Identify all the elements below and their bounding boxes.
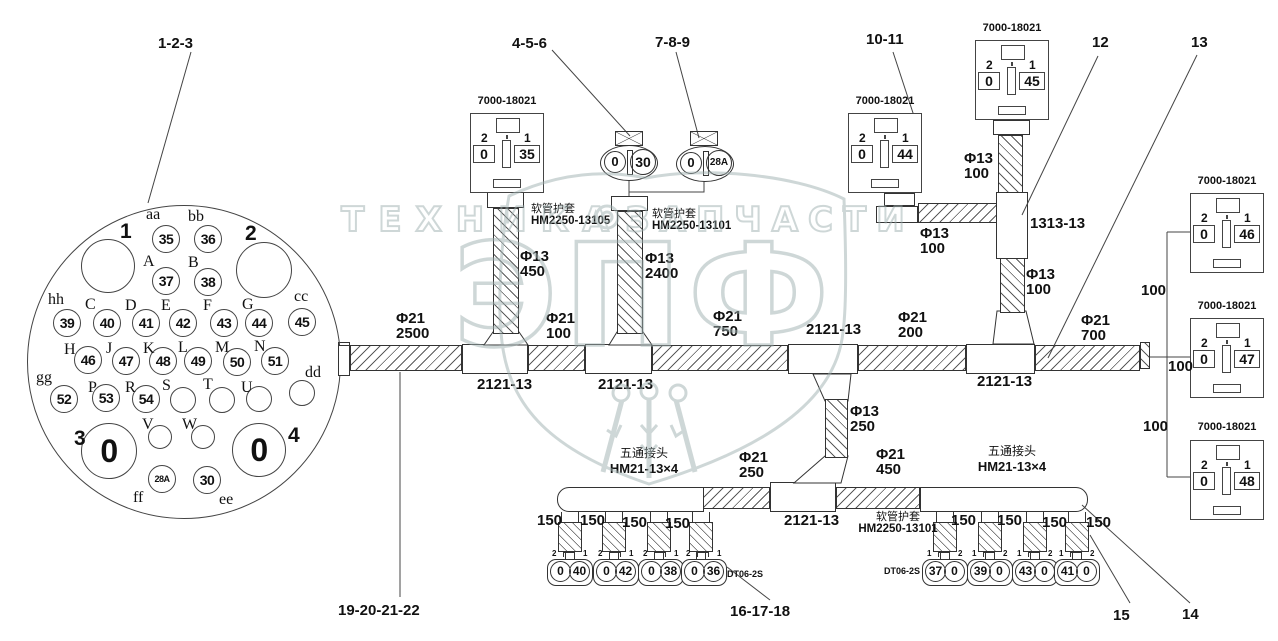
pin1-label: 1: [524, 131, 531, 145]
len-150: 150: [537, 513, 562, 529]
pin-circle: 0: [1034, 561, 1055, 582]
tube-100c-column: [918, 203, 997, 223]
tube-250-column: [825, 399, 848, 458]
pin2-label: 2: [986, 58, 993, 72]
y-joint-label: 1313-13: [1030, 216, 1085, 232]
connector-box-35: 2 1 0 35: [470, 113, 544, 193]
fitting-riser45: [993, 120, 1030, 135]
pin-label: 4: [288, 424, 300, 448]
five-way-label-left: 五通接头 HM21-13×4: [600, 444, 688, 476]
tube-label-100d: Φ13100: [1026, 267, 1055, 297]
pin1-label: 1: [1244, 336, 1251, 350]
callout-10-11: 10-11: [866, 32, 904, 48]
connector-box-44: 2 1 0 44: [848, 113, 922, 193]
pin-label: A: [143, 253, 155, 271]
pin-label: W: [182, 416, 197, 434]
connector-box-46: 2 1 0 46: [1190, 193, 1264, 273]
box-top-slot: [1001, 45, 1025, 60]
pin2-value: 0: [1193, 225, 1215, 243]
pin-num: 2: [1003, 549, 1007, 558]
pin-circle: 0: [944, 561, 965, 582]
pin-circle: 0: [550, 561, 571, 582]
pin-label: F: [203, 297, 212, 315]
box-top-slot: [1216, 323, 1240, 338]
pin-35: 35: [152, 225, 180, 253]
tee2-label: 2121-13: [598, 377, 653, 393]
pin-num: 1: [1059, 549, 1063, 558]
pin-43: 43: [210, 309, 238, 337]
pin1-value: 46: [1234, 225, 1260, 243]
fitting-riser1: [487, 191, 524, 208]
pin-circle: 0: [604, 151, 626, 173]
box-mid-slot: [1222, 220, 1231, 248]
pin-label: P: [88, 379, 97, 397]
dt06-connector-36: 0 36: [681, 559, 727, 586]
connector-title: 7000-18021: [1190, 300, 1264, 312]
pin-label: 2: [245, 222, 257, 246]
callout-16-17-18: 16-17-18: [730, 604, 790, 620]
latch: [938, 552, 950, 557]
callout-1-2-3: 1-2-3: [158, 36, 193, 52]
pin-label: aa: [146, 206, 160, 224]
pin2-value: 0: [473, 145, 495, 163]
pin-47: 47: [112, 347, 140, 375]
pin-label: U: [241, 379, 253, 397]
dt06-connector-43: 43 0: [1012, 559, 1058, 586]
connector-title: 7000-18021: [975, 22, 1049, 34]
sleeve-label-13101-bottom: 软管护套 HM2250-13101: [856, 511, 940, 536]
box-top-slot: [496, 118, 520, 133]
tube-label-750: Φ21750: [713, 309, 742, 339]
pin-label: E: [161, 297, 171, 315]
pin-label: L: [178, 339, 188, 357]
connector-title: 7000-18021: [1190, 421, 1264, 433]
pin-54: 54: [132, 385, 160, 413]
pin-num: 1: [674, 549, 678, 558]
pin-S: [170, 387, 196, 413]
pin-label: C: [85, 296, 96, 314]
pin-num: 1: [1017, 549, 1021, 558]
box-mid-slot: [1007, 67, 1016, 95]
pin1-label: 1: [1244, 211, 1251, 225]
tube-2400-column: [617, 211, 643, 334]
connector-title: 7000-18021: [848, 95, 922, 107]
pin-circle: 39: [970, 561, 991, 582]
pin-circle: 0: [680, 152, 702, 174]
tube-label-100c: Φ13100: [920, 226, 949, 256]
pin-label: T: [203, 376, 213, 394]
pin2-label: 2: [1201, 211, 1208, 225]
pin-circle: 43: [1015, 561, 1036, 582]
box-bottom-slot: [871, 179, 899, 188]
box-mid-slot: [502, 140, 511, 168]
pin-28A: 28A: [148, 465, 176, 493]
pin-big-1: [81, 239, 135, 293]
drop-sleeve: [689, 522, 713, 552]
pin-39: 39: [53, 309, 81, 337]
pin-circle: 0: [1076, 561, 1097, 582]
pin-label: N: [254, 338, 266, 356]
pin-label: hh: [48, 291, 64, 309]
pin-num: 2: [552, 549, 556, 558]
box-bottom-slot: [1213, 506, 1241, 515]
len-150: 150: [622, 515, 647, 531]
pin-num: 2: [686, 549, 690, 558]
pin-num: 1: [629, 549, 633, 558]
box-key-mark: [1011, 62, 1013, 66]
latch: [654, 552, 666, 557]
callout-4-5-6: 4-5-6: [512, 36, 547, 52]
pin-42: 42: [169, 309, 197, 337]
pin-circle: 0: [641, 561, 662, 582]
dt06-connector-39: 39 0: [967, 559, 1013, 586]
pin-num: 1: [717, 549, 721, 558]
pin2-label: 2: [859, 131, 866, 145]
callout-15: 15: [1113, 608, 1130, 624]
pin-num: 2: [643, 549, 647, 558]
connector-box-47: 2 1 0 47: [1190, 318, 1264, 398]
pin2-value: 0: [1193, 350, 1215, 368]
callout-19-20-21-22: 19-20-21-22: [338, 603, 420, 619]
clip-box: [690, 131, 718, 146]
pin-label: K: [143, 340, 155, 358]
tube-100d-column: [1000, 258, 1025, 313]
pin1-value: 44: [892, 145, 918, 163]
pin-label: dd: [305, 364, 321, 382]
tube-label-250b: Φ21250: [739, 450, 768, 480]
pin-label: bb: [188, 208, 204, 226]
len-150: 150: [997, 513, 1022, 529]
dt06-connector-37: 37 0: [922, 559, 968, 586]
dt06-label-right: DT06-2S: [884, 566, 920, 576]
pin-label: gg: [36, 369, 52, 387]
pin-circle: 42: [615, 561, 636, 582]
pin1-value: 47: [1234, 350, 1260, 368]
pin-circle: 0: [989, 561, 1010, 582]
clip-box: [615, 131, 643, 146]
tube-label-100a: Φ21100: [546, 311, 575, 341]
pin2-value: 0: [978, 72, 1000, 90]
tube-450-column: [493, 208, 519, 334]
pin-37: 37: [152, 267, 180, 295]
pin-num: 2: [1048, 549, 1052, 558]
box-top-slot: [1216, 198, 1240, 213]
pin-num: 2: [958, 549, 962, 558]
pin1-value: 35: [514, 145, 540, 163]
pin-circle: 0: [684, 561, 705, 582]
pin-num: 1: [927, 549, 931, 558]
box-key-mark: [884, 135, 886, 139]
pin1-label: 1: [1244, 458, 1251, 472]
latch: [983, 552, 995, 557]
drop-stub: [561, 512, 579, 522]
tube-label-450: Φ13450: [520, 249, 549, 279]
pin-label: M: [215, 339, 229, 357]
tube-100b-column: [998, 135, 1023, 193]
pin-circle: 38: [660, 561, 681, 582]
tube-label-200: Φ21200: [898, 310, 927, 340]
pin-label: cc: [294, 288, 308, 306]
len-150: 150: [951, 513, 976, 529]
tube-label-100b: Φ13100: [964, 151, 993, 181]
box-mid-slot: [1222, 467, 1231, 495]
elbow-44-b: [876, 206, 918, 223]
pin1-value: 45: [1019, 72, 1045, 90]
oval-connector-30: 0 30: [600, 145, 658, 181]
sleeve-label-13101-top: 软管护套 HM2250-13101: [652, 208, 731, 233]
pin1-label: 1: [902, 131, 909, 145]
drop-stub: [605, 512, 623, 522]
pin2-value: 0: [851, 145, 873, 163]
pin-label: 3: [74, 427, 86, 451]
tube-label-700: Φ21700: [1081, 313, 1110, 343]
pin1-label: 1: [1029, 58, 1036, 72]
pin-label: ff: [133, 489, 143, 507]
pin-label: B: [188, 254, 199, 272]
pin-46: 46: [74, 346, 102, 374]
pin-38: 38: [194, 268, 222, 296]
pin-label: V: [142, 416, 154, 434]
pin-36: 36: [194, 225, 222, 253]
box-top-slot: [874, 118, 898, 133]
tube-label-2500: Φ212500: [396, 311, 429, 341]
box-bottom-slot: [1213, 259, 1241, 268]
tee3-label: 2121-13: [806, 322, 861, 338]
fitting-riser2: [611, 196, 648, 211]
box-mid-slot: [880, 140, 889, 168]
pin-big-4: 0: [232, 423, 286, 477]
pin-label: ee: [219, 491, 233, 509]
pin-big-2: [236, 242, 292, 298]
oval-connector-28A: 0 28A: [676, 146, 734, 182]
pin-label: D: [125, 297, 137, 315]
len-150: 150: [580, 513, 605, 529]
tee-bottom-label: 2121-13: [784, 513, 839, 529]
pin-label: G: [242, 296, 254, 314]
connector-title: 7000-18021: [1190, 175, 1264, 187]
harness-diagram: 7000-18021 2 1 0 35 7000-18021 2 1 0 44 …: [0, 0, 1278, 641]
callout-7-8-9: 7-8-9: [655, 35, 690, 51]
pin-label: 1: [120, 220, 132, 244]
pin-dd: [289, 380, 315, 406]
dt06-connector-38: 0 38: [638, 559, 684, 586]
connector-title: 7000-18021: [470, 95, 544, 107]
box-key-mark: [506, 135, 508, 139]
pin2-label: 2: [1201, 458, 1208, 472]
tube-label-250: Φ13250: [850, 404, 879, 434]
pin-49: 49: [184, 347, 212, 375]
box-bottom-slot: [998, 106, 1026, 115]
callout-12: 12: [1092, 35, 1109, 51]
latch: [563, 552, 575, 557]
callout-14: 14: [1182, 607, 1199, 623]
tube-label-450b: Φ21450: [876, 447, 905, 477]
pin-label: H: [64, 341, 76, 359]
tee4-label: 2121-13: [977, 374, 1032, 390]
five-way-label-right: 五通接头 HM21-13×4: [966, 442, 1058, 474]
box-key-mark: [1226, 462, 1228, 466]
latch: [1028, 552, 1040, 557]
dt06-connector-40: 0 40: [547, 559, 593, 586]
box-bottom-slot: [1213, 384, 1241, 393]
connector-box-48: 2 1 0 48: [1190, 440, 1264, 520]
connector-key-tab: [338, 345, 350, 376]
pin2-label: 2: [1201, 336, 1208, 350]
len-150: 150: [1042, 515, 1067, 531]
dt06-connector-41: 41 0: [1054, 559, 1100, 586]
pin-circle: 36: [703, 561, 724, 582]
pin-circle: 28A: [706, 150, 732, 176]
pin-label: J: [106, 340, 112, 358]
pin2-label: 2: [481, 131, 488, 145]
pin-circle: 41: [1057, 561, 1078, 582]
len-100: 100: [1168, 359, 1193, 375]
pin1-value: 48: [1234, 472, 1260, 490]
len-100: 100: [1143, 419, 1168, 435]
drop-stub: [1068, 512, 1086, 522]
tube-label-2400: Φ132400: [645, 251, 678, 281]
pin-num: 2: [598, 549, 602, 558]
pin-30: 30: [193, 466, 221, 494]
len-150: 150: [665, 516, 690, 532]
box-key-mark: [1226, 340, 1228, 344]
latch: [697, 552, 709, 557]
sleeve-label-13105: 软管护套 HM2250-13105: [531, 203, 610, 228]
callout-13: 13: [1191, 35, 1208, 51]
len-100: 100: [1141, 283, 1166, 299]
box-top-slot: [1216, 445, 1240, 460]
pin-circle: 30: [630, 149, 656, 175]
pin-circle: 40: [569, 561, 590, 582]
pin-45: 45: [288, 308, 316, 336]
len-150: 150: [1086, 515, 1111, 531]
pin-num: 1: [583, 549, 587, 558]
tee1-label: 2121-13: [477, 377, 532, 393]
latch: [609, 552, 621, 557]
pin-40: 40: [93, 309, 121, 337]
connector-box-45: 2 1 0 45: [975, 40, 1049, 120]
box-mid-slot: [1222, 345, 1231, 373]
pin-big-3: 0: [81, 423, 137, 479]
pin2-value: 0: [1193, 472, 1215, 490]
box-bottom-slot: [493, 179, 521, 188]
latch: [1070, 552, 1082, 557]
pin-num: 2: [1090, 549, 1094, 558]
dt06-connector-42: 0 42: [593, 559, 639, 586]
pin-circle: 37: [925, 561, 946, 582]
box-key-mark: [1226, 215, 1228, 219]
pin-circle: 0: [596, 561, 617, 582]
elbow-44-a: [884, 193, 915, 206]
pin-label: R: [125, 379, 136, 397]
pin-num: 1: [972, 549, 976, 558]
drop-stub: [692, 512, 710, 522]
pin-label: S: [162, 377, 171, 395]
dt06-label-left: DT06-2S: [727, 569, 763, 579]
pin-52: 52: [50, 385, 78, 413]
